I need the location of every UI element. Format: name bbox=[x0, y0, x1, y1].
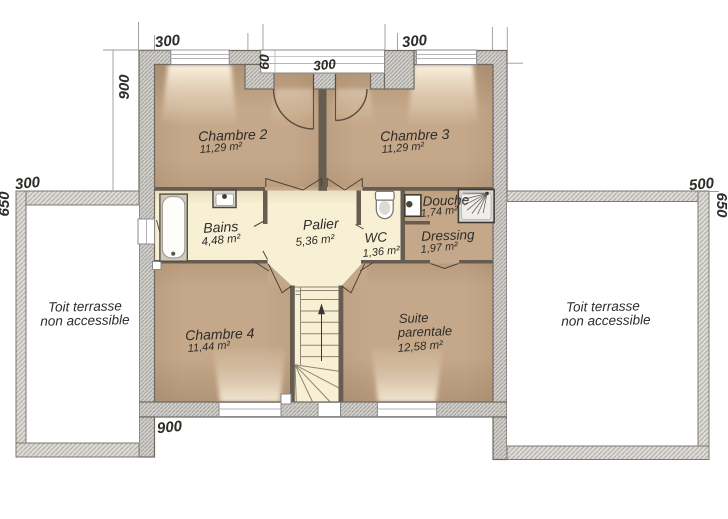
svg-text:non accessible: non accessible bbox=[40, 312, 130, 329]
svg-text:WC: WC bbox=[364, 229, 387, 245]
svg-text:non accessible: non accessible bbox=[561, 312, 651, 329]
svg-text:parentale: parentale bbox=[397, 323, 453, 340]
svg-text:300: 300 bbox=[154, 32, 181, 52]
svg-text:300: 300 bbox=[14, 174, 41, 194]
svg-text:900: 900 bbox=[156, 418, 183, 438]
svg-text:Palier: Palier bbox=[302, 215, 340, 233]
svg-text:900: 900 bbox=[116, 74, 133, 100]
svg-text:60: 60 bbox=[256, 54, 272, 70]
svg-text:650: 650 bbox=[713, 192, 728, 218]
svg-text:500: 500 bbox=[688, 175, 715, 195]
svg-text:300: 300 bbox=[401, 32, 428, 52]
svg-text:650: 650 bbox=[0, 191, 13, 217]
svg-text:300: 300 bbox=[313, 56, 337, 73]
